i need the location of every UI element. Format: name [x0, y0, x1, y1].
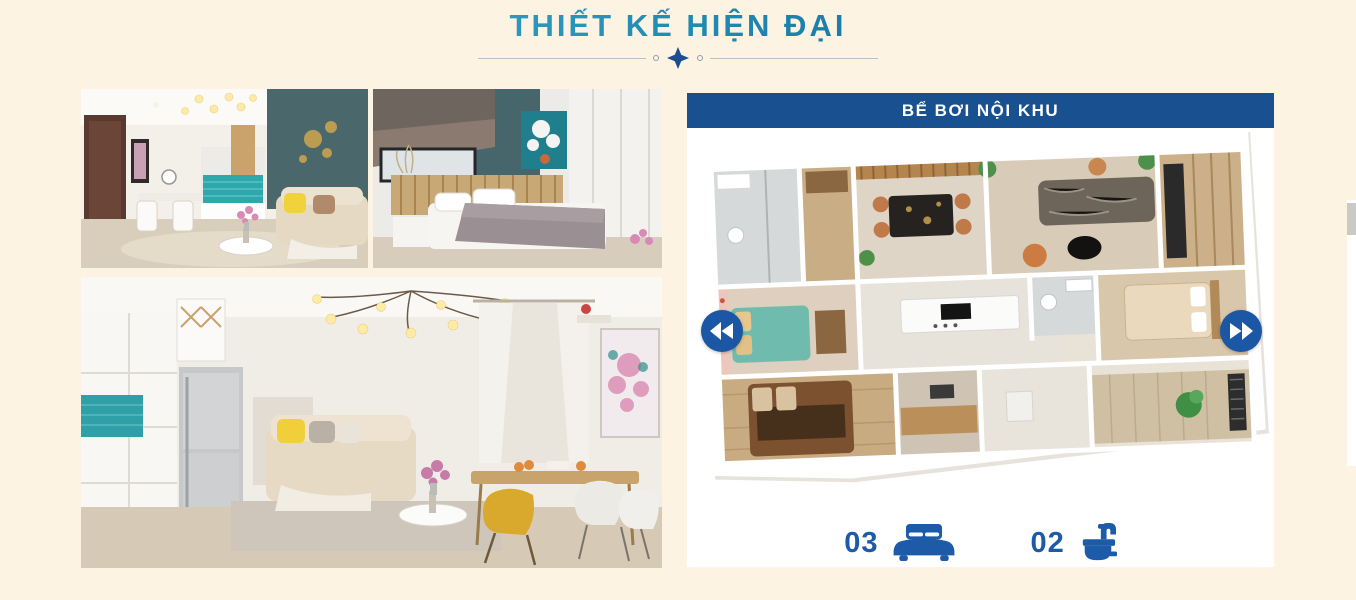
page-title: THIẾT KẾ HIỆN ĐẠI: [0, 8, 1356, 44]
floorplan-card: BỂ BƠI NỘI KHU: [687, 93, 1274, 567]
diamond-icon: [666, 46, 690, 70]
bedrooms-count: 03: [844, 527, 878, 560]
divider-ring-left: [653, 55, 659, 61]
double-chevron-right-icon: [1226, 320, 1256, 342]
photo-bedroom: [373, 89, 662, 268]
unit-stats: 03 02: [687, 521, 1274, 565]
floorplan-card-title: BỂ BƠI NỘI KHU: [687, 93, 1274, 128]
stat-bedrooms: 03: [844, 524, 954, 562]
title-divider: [478, 50, 878, 66]
divider-line-left: [478, 58, 646, 59]
next-slide-button[interactable]: [1220, 310, 1262, 352]
photo-large-living-room: [81, 277, 662, 568]
bathrooms-count: 02: [1031, 527, 1065, 560]
next-slide-preview: [1347, 200, 1356, 466]
next-slide-preview-fragment: [1347, 203, 1356, 235]
stat-bathrooms: 02: [1031, 522, 1117, 564]
washbasin-icon: [1079, 522, 1117, 564]
page: { "page": { "background_color": "#fcf3e3…: [0, 0, 1356, 600]
divider-ring-right: [697, 55, 703, 61]
floorplan-3d-image: [687, 132, 1274, 500]
prev-slide-button[interactable]: [701, 310, 743, 352]
double-chevron-left-icon: [707, 320, 737, 342]
floorplan-slide: 03 02: [687, 128, 1274, 567]
bed-icon: [893, 524, 955, 562]
photo-living-dining: [81, 89, 368, 268]
photo-collage: [81, 89, 662, 568]
divider-line-right: [710, 58, 878, 59]
